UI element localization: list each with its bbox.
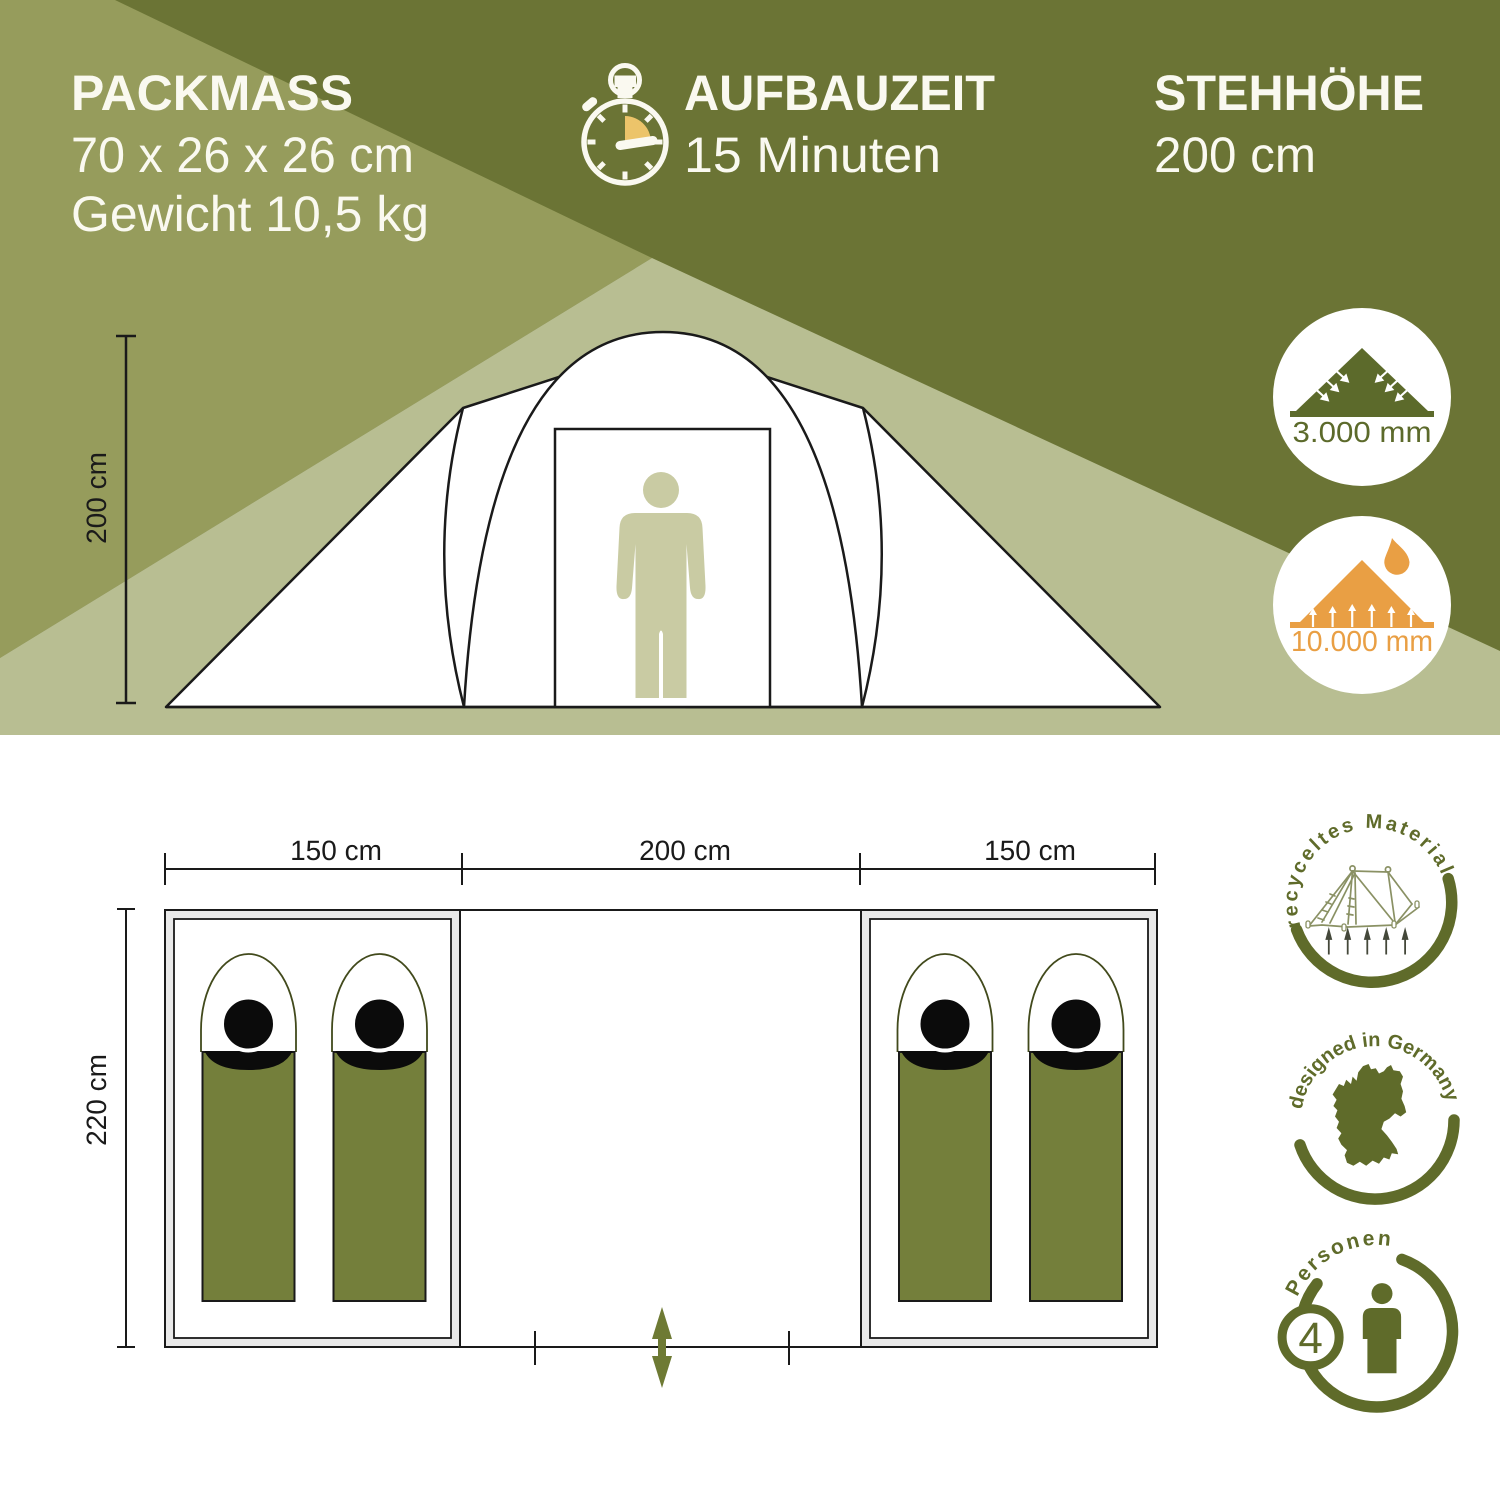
svg-text:15 Minuten: 15 Minuten xyxy=(684,127,941,183)
svg-text:70 x 26 x 26 cm: 70 x 26 x 26 cm xyxy=(71,127,414,183)
svg-text:STEHHÖHE: STEHHÖHE xyxy=(1154,65,1424,121)
svg-text:200 cm: 200 cm xyxy=(639,835,731,866)
svg-text:150 cm: 150 cm xyxy=(984,835,1076,866)
svg-text:200 cm: 200 cm xyxy=(81,452,112,544)
svg-text:Gewicht 10,5 kg: Gewicht 10,5 kg xyxy=(71,186,429,242)
svg-text:3.000 mm: 3.000 mm xyxy=(1293,417,1432,449)
svg-text:150 cm: 150 cm xyxy=(290,835,382,866)
svg-text:200 cm: 200 cm xyxy=(1154,127,1316,183)
svg-text:220 cm: 220 cm xyxy=(81,1054,112,1146)
svg-text:10.000 mm: 10.000 mm xyxy=(1291,626,1433,658)
svg-text:PACKMASS: PACKMASS xyxy=(71,65,353,121)
svg-text:4: 4 xyxy=(1298,1314,1322,1363)
svg-text:AUFBAUZEIT: AUFBAUZEIT xyxy=(684,65,995,121)
